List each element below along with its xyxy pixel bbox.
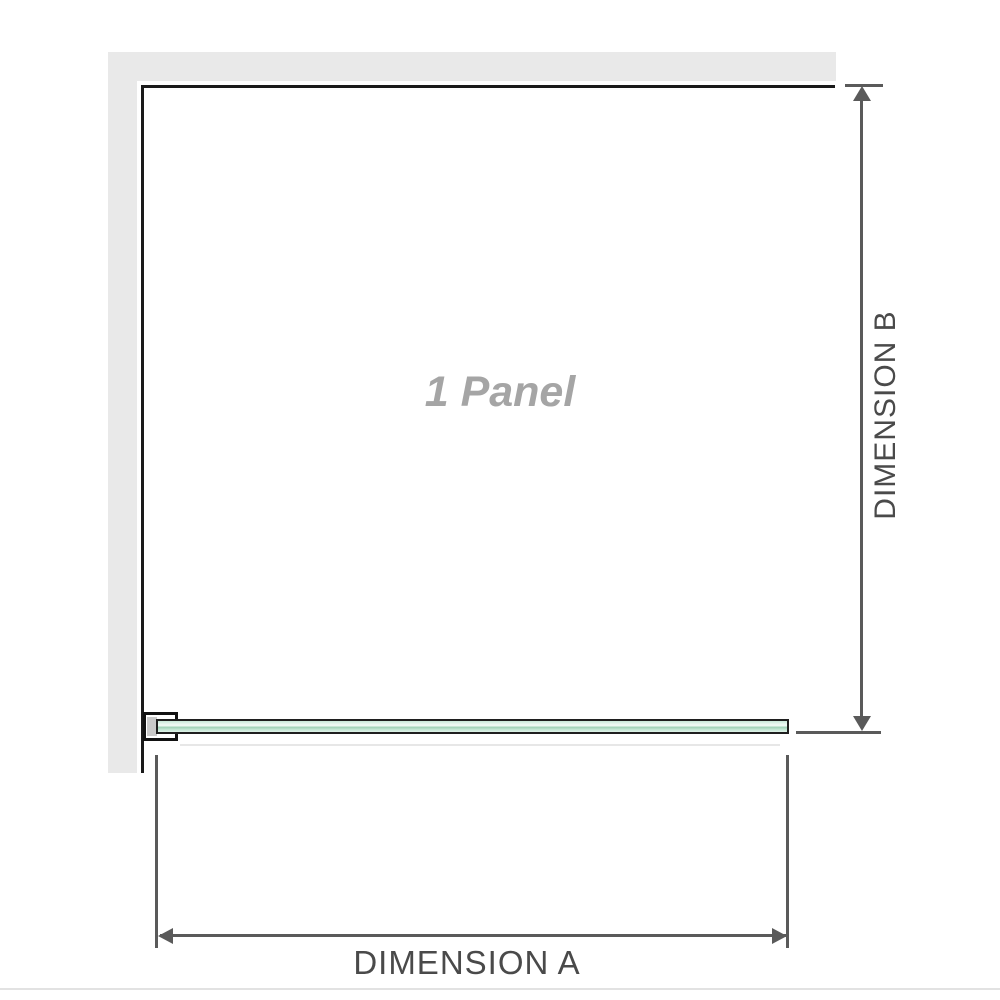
dimension-a-label: DIMENSION A xyxy=(317,945,617,981)
dimension-a-line xyxy=(160,934,787,937)
shower-panel-diagram: 1 Panel DIMENSION B DIMENSION A xyxy=(0,0,1000,1000)
wall-left-bar xyxy=(108,52,137,773)
wall-top-bar xyxy=(108,52,836,81)
footer-separator-line xyxy=(0,988,1000,990)
wall-left-edge-line xyxy=(141,85,144,773)
panel-count-label: 1 Panel xyxy=(340,368,660,417)
dimension-b-line xyxy=(860,97,863,721)
dimension-b-arrow-up-icon xyxy=(853,86,871,101)
dimension-a-arrow-right-icon xyxy=(772,928,787,944)
glass-panel-shadow xyxy=(180,744,780,746)
dimension-b-label: DIMENSION B xyxy=(866,255,906,575)
dimension-a-extension-left xyxy=(155,755,158,948)
dimension-b-tick-bottom xyxy=(796,731,881,734)
dimension-a-arrow-left-icon xyxy=(158,928,173,944)
wall-top-edge-line xyxy=(141,85,835,88)
dimension-a-extension-right xyxy=(786,755,789,948)
dimension-b-arrow-down-icon xyxy=(853,716,871,731)
glass-panel xyxy=(156,719,789,734)
